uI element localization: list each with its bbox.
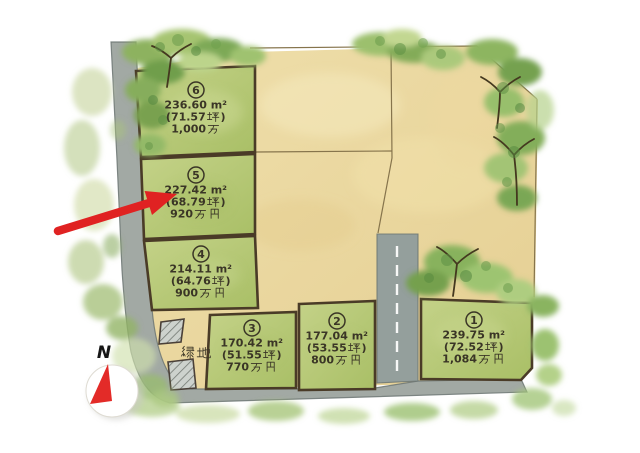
svg-text:): ) [276, 349, 281, 362]
plot-number: 2 [333, 315, 341, 328]
svg-text:1,000: 1,000 [171, 123, 206, 136]
compass-label: N [97, 343, 111, 363]
svg-text:): ) [225, 275, 230, 288]
plot-number: 1 [470, 314, 478, 327]
plot-number: 6 [192, 84, 200, 97]
svg-text:1,084: 1,084 [442, 353, 477, 366]
svg-text:): ) [498, 341, 503, 354]
plot-number: 3 [248, 322, 256, 335]
concrete-block [168, 359, 196, 390]
svg-text:800: 800 [311, 354, 334, 367]
svg-text:): ) [361, 342, 366, 355]
svg-text:): ) [220, 196, 225, 209]
svg-text:920: 920 [170, 208, 193, 221]
concrete-block [159, 319, 184, 344]
plot-number: 4 [197, 248, 205, 261]
land-plot-map: 1239.75 m²(72.52 )1,084 2177.04 m²(53.55… [0, 0, 640, 453]
svg-text:900: 900 [175, 287, 198, 300]
plot-number: 5 [192, 169, 200, 182]
svg-text:): ) [220, 111, 225, 124]
svg-text:770: 770 [226, 361, 249, 374]
map-canvas: 1239.75 m²(72.52 )1,084 2177.04 m²(53.55… [0, 0, 640, 453]
compass-circle [86, 365, 138, 417]
